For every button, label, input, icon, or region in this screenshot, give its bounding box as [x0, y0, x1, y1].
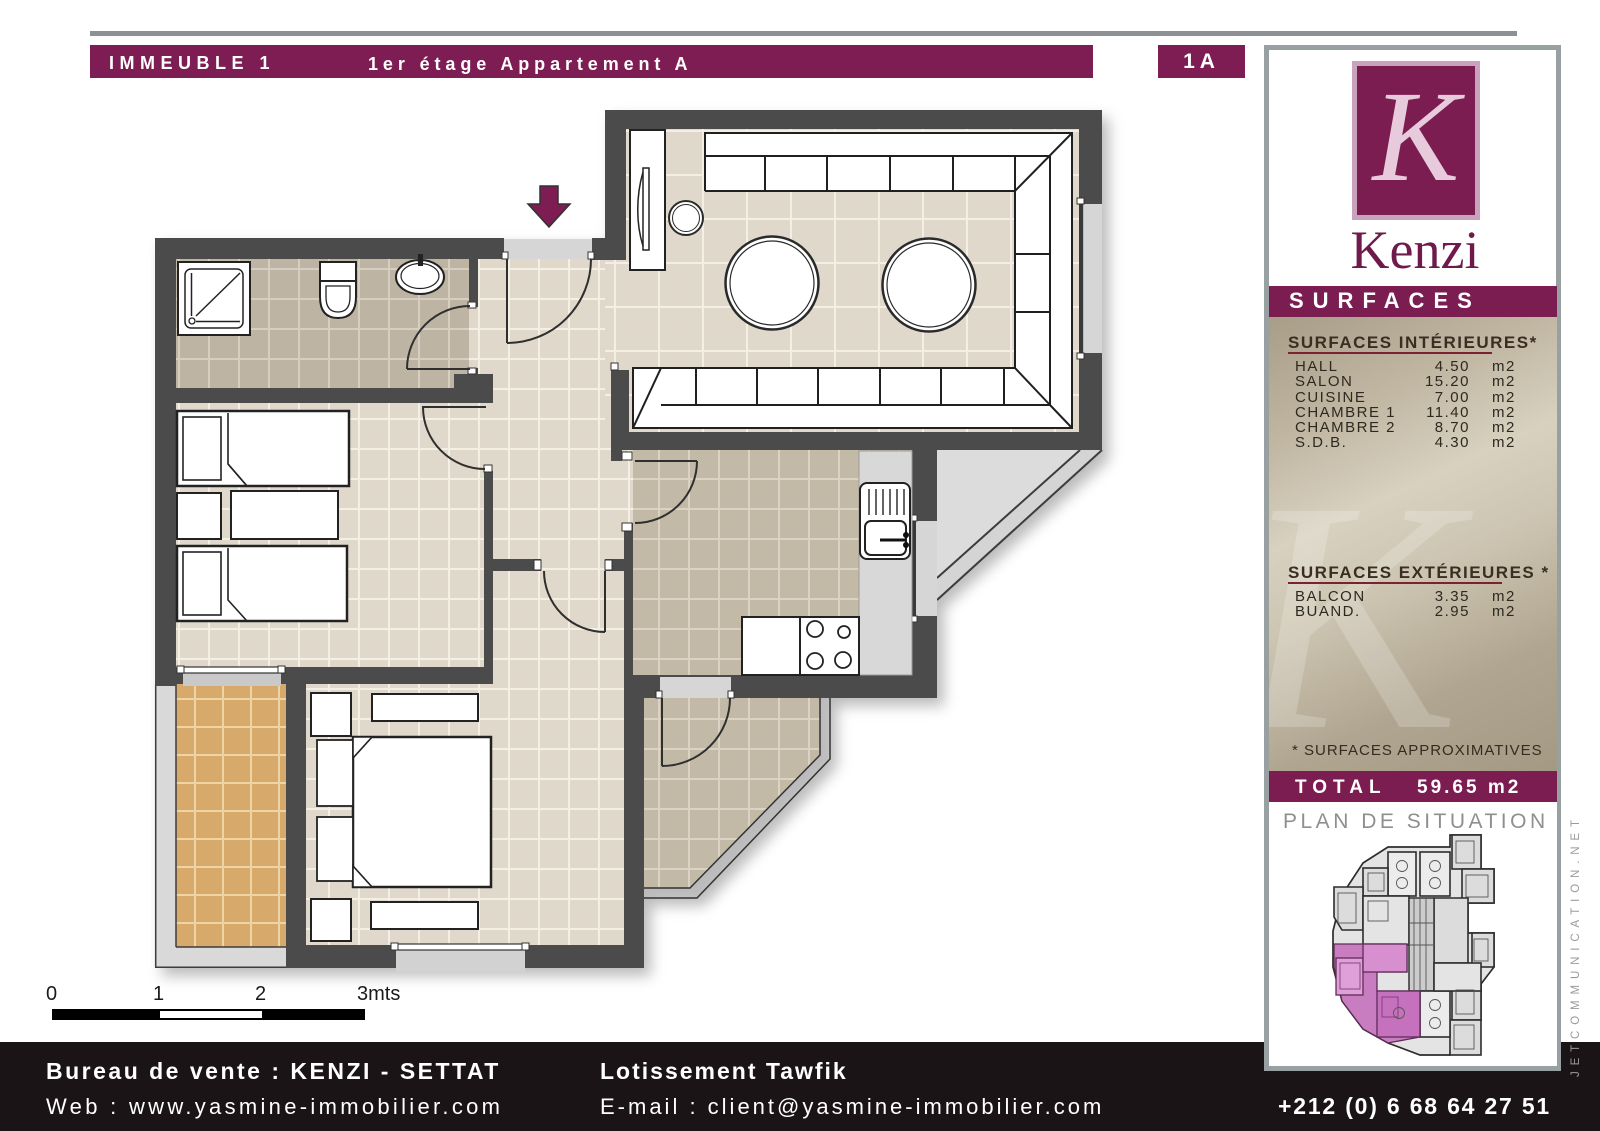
svg-text:JETCOMMUNICATION.NET: JETCOMMUNICATION.NET [1570, 817, 1582, 1077]
